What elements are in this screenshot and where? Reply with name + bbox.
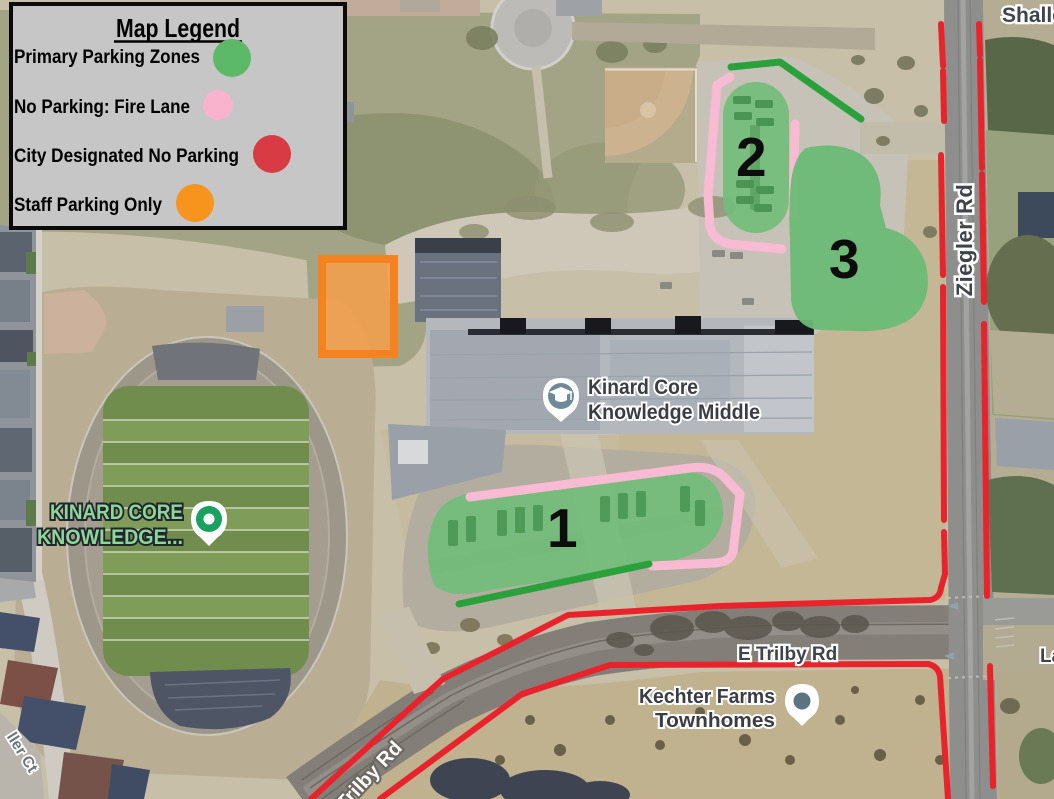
svg-text:No Parking: Fire Lane: No Parking: Fire Lane — [14, 96, 190, 118]
svg-text:3: 3 — [829, 228, 860, 290]
svg-text:Shallo: Shallo — [1002, 4, 1054, 27]
svg-text:La: La — [1040, 646, 1054, 667]
svg-text:Staff Parking Only: Staff Parking Only — [14, 194, 162, 216]
svg-text:City Designated No Parking: City Designated No Parking — [14, 145, 239, 167]
svg-text:Knowledge Middle: Knowledge Middle — [588, 401, 760, 424]
svg-text:1: 1 — [547, 497, 578, 559]
svg-text:KNOWLEDGE...: KNOWLEDGE... — [37, 526, 183, 549]
svg-text:E Trilby Rd: E Trilby Rd — [738, 644, 837, 665]
svg-text:Ziegler Rd: Ziegler Rd — [952, 184, 977, 297]
svg-text:Kinard Core: Kinard Core — [588, 376, 698, 399]
svg-text:2: 2 — [736, 126, 767, 188]
svg-text:Townhomes: Townhomes — [655, 710, 775, 732]
svg-text:KINARD CORE: KINARD CORE — [50, 501, 183, 524]
svg-text:Kechter Farms: Kechter Farms — [639, 686, 775, 708]
svg-text:Map Legend: Map Legend — [116, 13, 240, 43]
svg-text:Primary Parking Zones: Primary Parking Zones — [14, 46, 200, 68]
